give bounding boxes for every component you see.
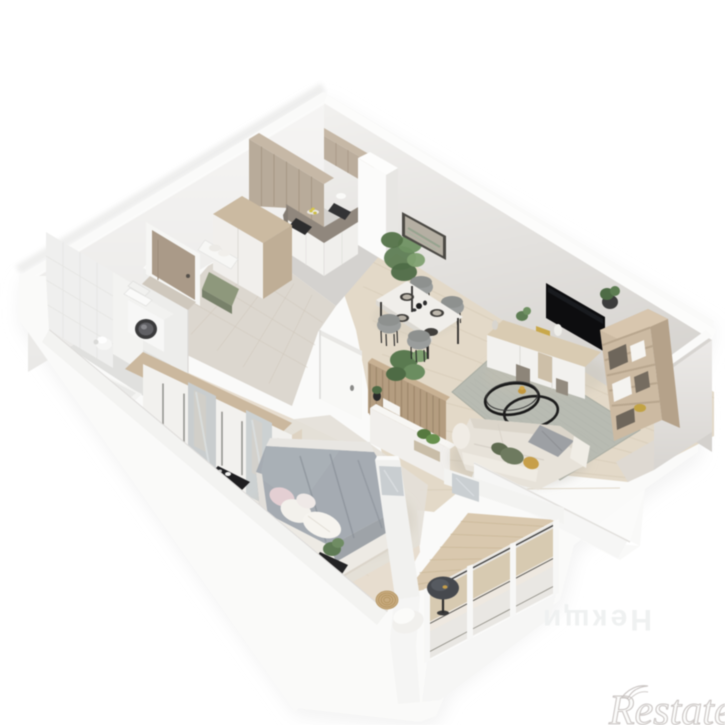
svg-text:Некщи: Некщи xyxy=(540,603,652,636)
